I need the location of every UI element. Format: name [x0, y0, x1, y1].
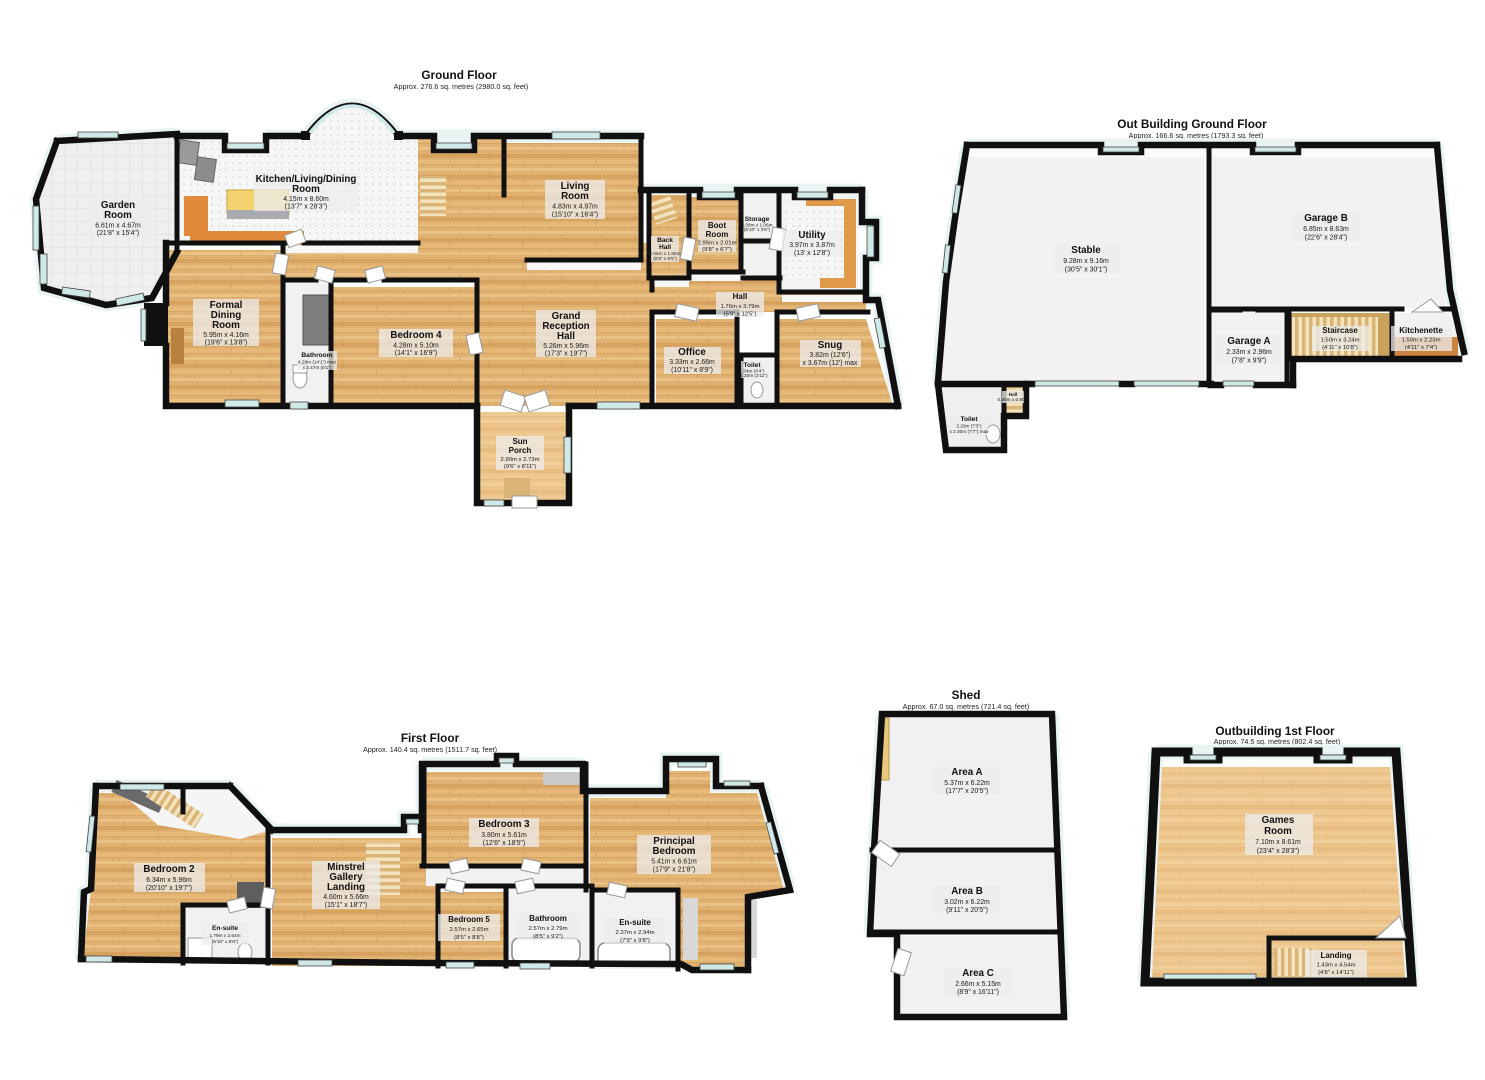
svg-text:Garage B: Garage B	[1304, 213, 1348, 224]
svg-text:3.33m x 2.66m: 3.33m x 2.66m	[669, 359, 715, 366]
svg-text:(9'6" x 8'11"): (9'6" x 8'11")	[504, 464, 537, 470]
svg-text:(14'1" x 16'9"): (14'1" x 16'9")	[395, 350, 437, 357]
svg-text:Hall: Hall	[659, 244, 671, 251]
svg-text:(30'5" x 30'1"): (30'5" x 30'1")	[1065, 267, 1107, 274]
svg-text:x 3.67m (12') max: x 3.67m (12') max	[803, 360, 858, 367]
svg-text:(9'11" x 20'5"): (9'11" x 20'5")	[946, 907, 988, 914]
svg-text:5.41m x 6.61m: 5.41m x 6.61m	[651, 859, 697, 866]
svg-text:2.57m x 2.65m: 2.57m x 2.65m	[450, 927, 489, 933]
svg-text:x 2.47m (8'1"): x 2.47m (8'1")	[303, 365, 332, 370]
svg-text:2.37m x 2.94m: 2.37m x 2.94m	[616, 930, 655, 936]
svg-text:9.28m x 9.16m: 9.28m x 9.16m	[1063, 258, 1109, 265]
svg-text:Stable: Stable	[1071, 245, 1101, 256]
svg-text:(8'5" x 8'8"): (8'5" x 8'8")	[454, 935, 484, 941]
svg-text:2.57m x 2.79m: 2.57m x 2.79m	[529, 926, 568, 932]
svg-text:5.37m x 6.22m: 5.37m x 6.22m	[944, 780, 990, 787]
svg-text:First Floor: First Floor	[401, 731, 460, 745]
svg-text:Bathroom: Bathroom	[301, 352, 332, 359]
svg-text:Room: Room	[212, 320, 240, 331]
svg-text:0.90m x 0.90m: 0.90m x 0.90m	[997, 397, 1028, 402]
svg-text:Approx. 67.0 sq. metres (721.4: Approx. 67.0 sq. metres (721.4 sq. feet)	[903, 702, 1030, 711]
svg-text:(5'9" x 12'5"): (5'9" x 12'5")	[724, 312, 757, 318]
svg-text:Out Building Ground Floor: Out Building Ground Floor	[1117, 117, 1267, 131]
svg-text:(4'11" x 10'8"): (4'11" x 10'8")	[1322, 345, 1358, 351]
svg-text:Room: Room	[104, 210, 132, 221]
svg-text:Hall: Hall	[733, 292, 748, 301]
svg-text:Room: Room	[1264, 826, 1292, 837]
svg-text:Utility: Utility	[798, 230, 826, 241]
svg-text:Landing: Landing	[1320, 951, 1351, 960]
svg-text:Hall: Hall	[557, 331, 575, 342]
svg-text:(15'1" x 18'7"): (15'1" x 18'7")	[325, 902, 367, 909]
svg-text:4.60m x 5.66m: 4.60m x 5.66m	[323, 894, 369, 901]
svg-text:(9'8" x 6'7"): (9'8" x 6'7")	[702, 247, 732, 253]
svg-text:(20'10" x 19'7"): (20'10" x 19'7")	[146, 885, 192, 892]
svg-text:Back: Back	[657, 237, 673, 244]
svg-text:Approx. 276.6 sq. metres (2980: Approx. 276.6 sq. metres (2980.0 sq. fee…	[394, 82, 529, 91]
svg-text:2.90m x 2.73m: 2.90m x 2.73m	[501, 457, 540, 463]
svg-text:Area C: Area C	[962, 968, 994, 979]
svg-text:En-suite: En-suite	[212, 925, 238, 932]
svg-text:4.28m (14'1") max: 4.28m (14'1") max	[298, 360, 337, 365]
svg-text:(7'9" x 9'8"): (7'9" x 9'8")	[620, 938, 650, 944]
svg-text:(15'10" x 16'4"): (15'10" x 16'4")	[552, 212, 598, 219]
svg-text:Bedroom 3: Bedroom 3	[478, 819, 530, 830]
svg-text:6.61m x 4.67m: 6.61m x 4.67m	[95, 223, 141, 230]
svg-text:Bedroom 4: Bedroom 4	[390, 330, 442, 341]
svg-text:Room: Room	[706, 230, 729, 239]
svg-text:2.20m (7'3"): 2.20m (7'3")	[956, 424, 982, 429]
svg-text:Bedroom 2: Bedroom 2	[143, 864, 195, 875]
svg-text:1.76m x 3.79m: 1.76m x 3.79m	[721, 304, 760, 310]
svg-text:4.15m x 8.60m: 4.15m x 8.60m	[283, 196, 329, 203]
svg-text:3.97m x 3.87m: 3.97m x 3.87m	[789, 242, 835, 249]
svg-text:Boot: Boot	[708, 221, 727, 230]
svg-text:Room: Room	[561, 191, 589, 202]
svg-text:(8'5" x 9'2"): (8'5" x 9'2")	[533, 934, 563, 940]
svg-text:x 1.20m (3'11"): x 1.20m (3'11")	[736, 373, 768, 378]
svg-text:Porch: Porch	[509, 446, 532, 455]
svg-text:(23'4" x 28'3"): (23'4" x 28'3")	[1257, 848, 1299, 855]
svg-text:Area B: Area B	[951, 886, 983, 897]
svg-text:Games: Games	[1262, 815, 1295, 826]
svg-text:(17'7" x 20'5"): (17'7" x 20'5")	[946, 788, 988, 795]
svg-text:Approx. 140.4 sq. metres (1511: Approx. 140.4 sq. metres (1511.7 sq. fee…	[363, 745, 497, 754]
svg-text:Sun: Sun	[512, 437, 527, 446]
svg-text:6.34m x 5.96m: 6.34m x 5.96m	[146, 877, 192, 884]
svg-text:5.26m x 5.96m: 5.26m x 5.96m	[543, 343, 589, 350]
svg-text:En-suite: En-suite	[619, 918, 651, 927]
svg-text:(17'9" x 21'8"): (17'9" x 21'8")	[653, 867, 695, 874]
svg-text:7.10m x 8.61m: 7.10m x 8.61m	[1255, 839, 1301, 846]
svg-text:Shed: Shed	[952, 688, 981, 702]
svg-text:1.50m x 2.23m: 1.50m x 2.23m	[1402, 338, 1441, 344]
svg-text:(4'8" x 14'11"): (4'8" x 14'11")	[1318, 970, 1354, 976]
svg-text:6.85m x 8.63m: 6.85m x 8.63m	[1303, 226, 1349, 233]
svg-text:(21'8" x 15'4"): (21'8" x 15'4")	[97, 230, 139, 237]
svg-text:(10'11" x 8'9"): (10'11" x 8'9")	[671, 367, 713, 374]
svg-text:(13' x 12'8"): (13' x 12'8")	[794, 250, 830, 257]
svg-text:3.82m (12'6"): 3.82m (12'6")	[810, 352, 851, 359]
svg-text:Area A: Area A	[951, 767, 982, 778]
svg-text:Bedroom 5: Bedroom 5	[448, 915, 490, 924]
svg-text:Toilet: Toilet	[960, 416, 978, 423]
svg-text:Outbuilding 1st Floor: Outbuilding 1st Floor	[1215, 724, 1335, 738]
svg-text:(4'11" x 7'4"): (4'11" x 7'4")	[1405, 345, 1438, 351]
svg-text:Office: Office	[678, 347, 706, 358]
svg-text:(5'10" x 8'8"): (5'10" x 8'8")	[212, 939, 239, 944]
svg-text:3.80m x 5.61m: 3.80m x 5.61m	[481, 832, 527, 839]
svg-text:2.95m x 2.01m: 2.95m x 2.01m	[698, 241, 737, 247]
svg-text:2.33m x 2.96m: 2.33m x 2.96m	[1226, 349, 1272, 356]
svg-text:(6'10" x 3'6"): (6'10" x 3'6")	[744, 227, 771, 232]
svg-text:(12'6" x 18'5"): (12'6" x 18'5")	[483, 840, 525, 847]
svg-text:1.43m x 4.54m: 1.43m x 4.54m	[1317, 963, 1356, 969]
svg-text:4.28m x 5.10m: 4.28m x 5.10m	[393, 343, 439, 350]
svg-text:3.02m x 6.22m: 3.02m x 6.22m	[944, 899, 990, 906]
svg-text:Bathroom: Bathroom	[529, 914, 567, 923]
svg-text:(7'8" x 9'9"): (7'8" x 9'9")	[1232, 358, 1267, 365]
svg-text:1.79m x 2.64m: 1.79m x 2.64m	[209, 933, 240, 938]
svg-text:Bedroom: Bedroom	[652, 846, 695, 857]
svg-text:Staircase: Staircase	[1322, 326, 1358, 335]
svg-text:(13'7" x 28'3"): (13'7" x 28'3")	[285, 204, 327, 211]
svg-text:Ground Floor: Ground Floor	[421, 68, 497, 82]
svg-text:Kitchenette: Kitchenette	[1399, 326, 1443, 335]
svg-text:Snug: Snug	[818, 340, 843, 351]
svg-text:5.95m x 4.16m: 5.95m x 4.16m	[203, 332, 249, 339]
svg-text:4.83m x 4.97m: 4.83m x 4.97m	[552, 204, 598, 211]
svg-text:(22'6" x 28'4"): (22'6" x 28'4")	[1305, 235, 1347, 242]
svg-text:(6'9" x 5'5"): (6'9" x 5'5")	[653, 256, 677, 261]
svg-text:(19'6" x 13'8"): (19'6" x 13'8")	[205, 340, 247, 347]
svg-text:x 2.30m (7'7") max: x 2.30m (7'7") max	[949, 429, 989, 434]
svg-text:(17'3" x 19'7"): (17'3" x 19'7")	[545, 351, 587, 358]
svg-text:Garage A: Garage A	[1227, 336, 1270, 347]
svg-text:Room: Room	[292, 184, 320, 195]
svg-text:1.50m x 3.24m: 1.50m x 3.24m	[1321, 338, 1360, 344]
svg-text:2.66m x 5.15m: 2.66m x 5.15m	[955, 981, 1001, 988]
svg-text:Landing: Landing	[327, 882, 365, 893]
svg-text:(8'9" x 16'11"): (8'9" x 16'11")	[957, 989, 999, 996]
